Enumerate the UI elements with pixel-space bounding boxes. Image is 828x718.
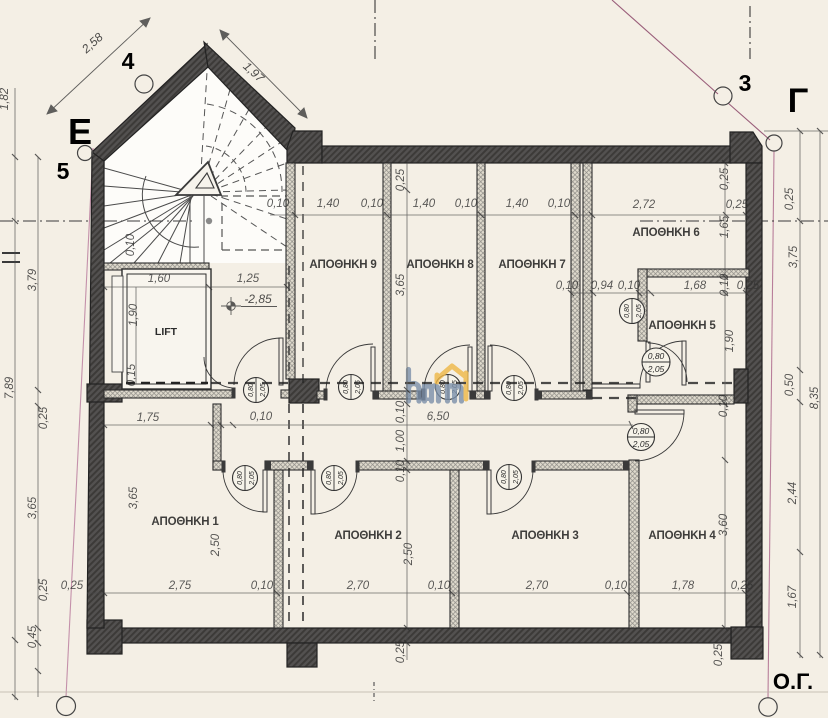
- svg-text:1,68: 1,68: [684, 280, 707, 292]
- svg-text:2,72: 2,72: [632, 199, 656, 211]
- svg-text:0,25: 0,25: [38, 406, 50, 429]
- svg-text:1,40: 1,40: [506, 198, 529, 210]
- svg-text:3,65: 3,65: [27, 496, 39, 519]
- svg-text:2,50: 2,50: [403, 542, 415, 566]
- svg-text:2,05: 2,05: [260, 383, 267, 398]
- svg-text:ΑΠΟΘΗΚΗ 4: ΑΠΟΘΗΚΗ 4: [648, 530, 716, 542]
- svg-text:0,80: 0,80: [326, 471, 333, 485]
- svg-text:Γ: Γ: [788, 82, 808, 120]
- svg-text:1,82: 1,82: [0, 87, 11, 110]
- svg-text:2,58: 2,58: [78, 30, 106, 57]
- svg-text:ΑΠΟΘΗΚΗ 5: ΑΠΟΘΗΚΗ 5: [648, 320, 716, 332]
- svg-text:0,25: 0,25: [395, 640, 407, 663]
- svg-text:2,05: 2,05: [513, 470, 520, 485]
- svg-text:1,75: 1,75: [137, 412, 160, 424]
- svg-text:4: 4: [122, 48, 135, 74]
- svg-text:0,10: 0,10: [125, 233, 137, 256]
- svg-text:2,70: 2,70: [525, 580, 549, 592]
- svg-text:0,10: 0,10: [605, 580, 628, 592]
- svg-text:0,25: 0,25: [719, 167, 731, 190]
- svg-text:3,75: 3,75: [788, 245, 800, 268]
- svg-text:8,35: 8,35: [809, 386, 821, 409]
- svg-text:5: 5: [57, 158, 70, 184]
- svg-text:ΑΠΟΘΗΚΗ 8: ΑΠΟΘΗΚΗ 8: [406, 259, 474, 271]
- svg-text:0,10: 0,10: [251, 580, 274, 592]
- svg-text:0,10: 0,10: [428, 580, 451, 592]
- svg-text:0,45: 0,45: [27, 625, 39, 648]
- svg-text:1,65: 1,65: [719, 215, 731, 238]
- svg-text:0,10: 0,10: [395, 459, 407, 482]
- svg-text:0,10: 0,10: [361, 198, 384, 210]
- svg-text:0,80: 0,80: [237, 471, 244, 485]
- svg-text:7,89: 7,89: [4, 376, 16, 399]
- svg-text:0,80: 0,80: [501, 470, 508, 484]
- svg-text:1,25: 1,25: [237, 273, 260, 285]
- svg-text:0,15: 0,15: [126, 363, 138, 386]
- svg-text:0,25: 0,25: [61, 580, 84, 592]
- svg-text:1,90: 1,90: [724, 329, 736, 352]
- svg-text:3,79: 3,79: [27, 268, 39, 291]
- svg-text:0,25: 0,25: [713, 643, 725, 666]
- svg-text:0,80: 0,80: [648, 351, 665, 361]
- svg-text:0,80: 0,80: [248, 383, 255, 397]
- svg-text:0,10: 0,10: [395, 400, 407, 423]
- svg-text:0,25: 0,25: [38, 578, 50, 601]
- svg-text:0,10: 0,10: [548, 198, 571, 210]
- svg-text:LIFT: LIFT: [155, 326, 178, 338]
- svg-text:6,50: 6,50: [427, 411, 450, 423]
- svg-text:1,67: 1,67: [787, 585, 799, 608]
- svg-text:0,25: 0,25: [737, 280, 760, 292]
- svg-text:0,10: 0,10: [455, 198, 478, 210]
- svg-text:0,10: 0,10: [719, 273, 731, 296]
- svg-text:1,78: 1,78: [672, 580, 695, 592]
- svg-text:ΑΠΟΘΗΚΗ 3: ΑΠΟΘΗΚΗ 3: [511, 530, 578, 542]
- svg-text:ΑΠΟΘΗΚΗ 1: ΑΠΟΘΗΚΗ 1: [151, 516, 219, 528]
- svg-text:0,25: 0,25: [395, 168, 407, 191]
- svg-text:2,05: 2,05: [647, 364, 665, 374]
- svg-text:1,90: 1,90: [128, 303, 140, 326]
- svg-text:ΑΠΟΘΗΚΗ 2: ΑΠΟΘΗΚΗ 2: [334, 530, 401, 542]
- svg-text:0,25: 0,25: [731, 580, 754, 592]
- svg-text:3,65: 3,65: [128, 486, 140, 509]
- svg-text:0,10: 0,10: [718, 394, 730, 417]
- svg-text:ΑΠΟΘΗΚΗ 6: ΑΠΟΘΗΚΗ 6: [632, 227, 699, 239]
- svg-text:2,05: 2,05: [632, 439, 650, 449]
- svg-text:1,40: 1,40: [317, 198, 340, 210]
- svg-text:ΑΠΟΘΗΚΗ 7: ΑΠΟΘΗΚΗ 7: [498, 259, 565, 271]
- svg-text:0,25: 0,25: [726, 199, 749, 211]
- svg-text:0,10: 0,10: [250, 411, 273, 423]
- svg-text:0,80: 0,80: [633, 426, 650, 436]
- svg-text:2,05: 2,05: [249, 471, 256, 486]
- svg-text:3,60: 3,60: [718, 513, 730, 536]
- svg-text:0,10: 0,10: [556, 280, 579, 292]
- svg-text:0,80: 0,80: [624, 304, 631, 318]
- svg-text:2,44: 2,44: [787, 482, 799, 505]
- svg-text:1,00: 1,00: [395, 429, 407, 452]
- svg-text:1,60: 1,60: [148, 273, 171, 285]
- svg-text:1,40: 1,40: [413, 198, 436, 210]
- svg-text:0,50: 0,50: [784, 373, 796, 396]
- svg-text:-2,85: -2,85: [244, 292, 272, 306]
- svg-text:0,25: 0,25: [784, 187, 796, 210]
- svg-text:ΑΠΟΘΗΚΗ 9: ΑΠΟΘΗΚΗ 9: [309, 259, 376, 271]
- svg-text:2,75: 2,75: [168, 580, 192, 592]
- svg-text:2,50: 2,50: [210, 533, 222, 557]
- svg-text:2,05: 2,05: [518, 381, 525, 396]
- svg-text:3,65: 3,65: [395, 273, 407, 296]
- svg-text:0,10: 0,10: [618, 280, 641, 292]
- svg-text:2,70: 2,70: [346, 580, 370, 592]
- svg-text:2,05: 2,05: [338, 471, 345, 486]
- svg-text:0,10: 0,10: [267, 198, 290, 210]
- svg-text:Ο.Γ.: Ο.Γ.: [773, 669, 813, 694]
- svg-text:2,05: 2,05: [636, 304, 643, 319]
- svg-text:0,94: 0,94: [591, 280, 613, 292]
- svg-text:3: 3: [739, 70, 752, 96]
